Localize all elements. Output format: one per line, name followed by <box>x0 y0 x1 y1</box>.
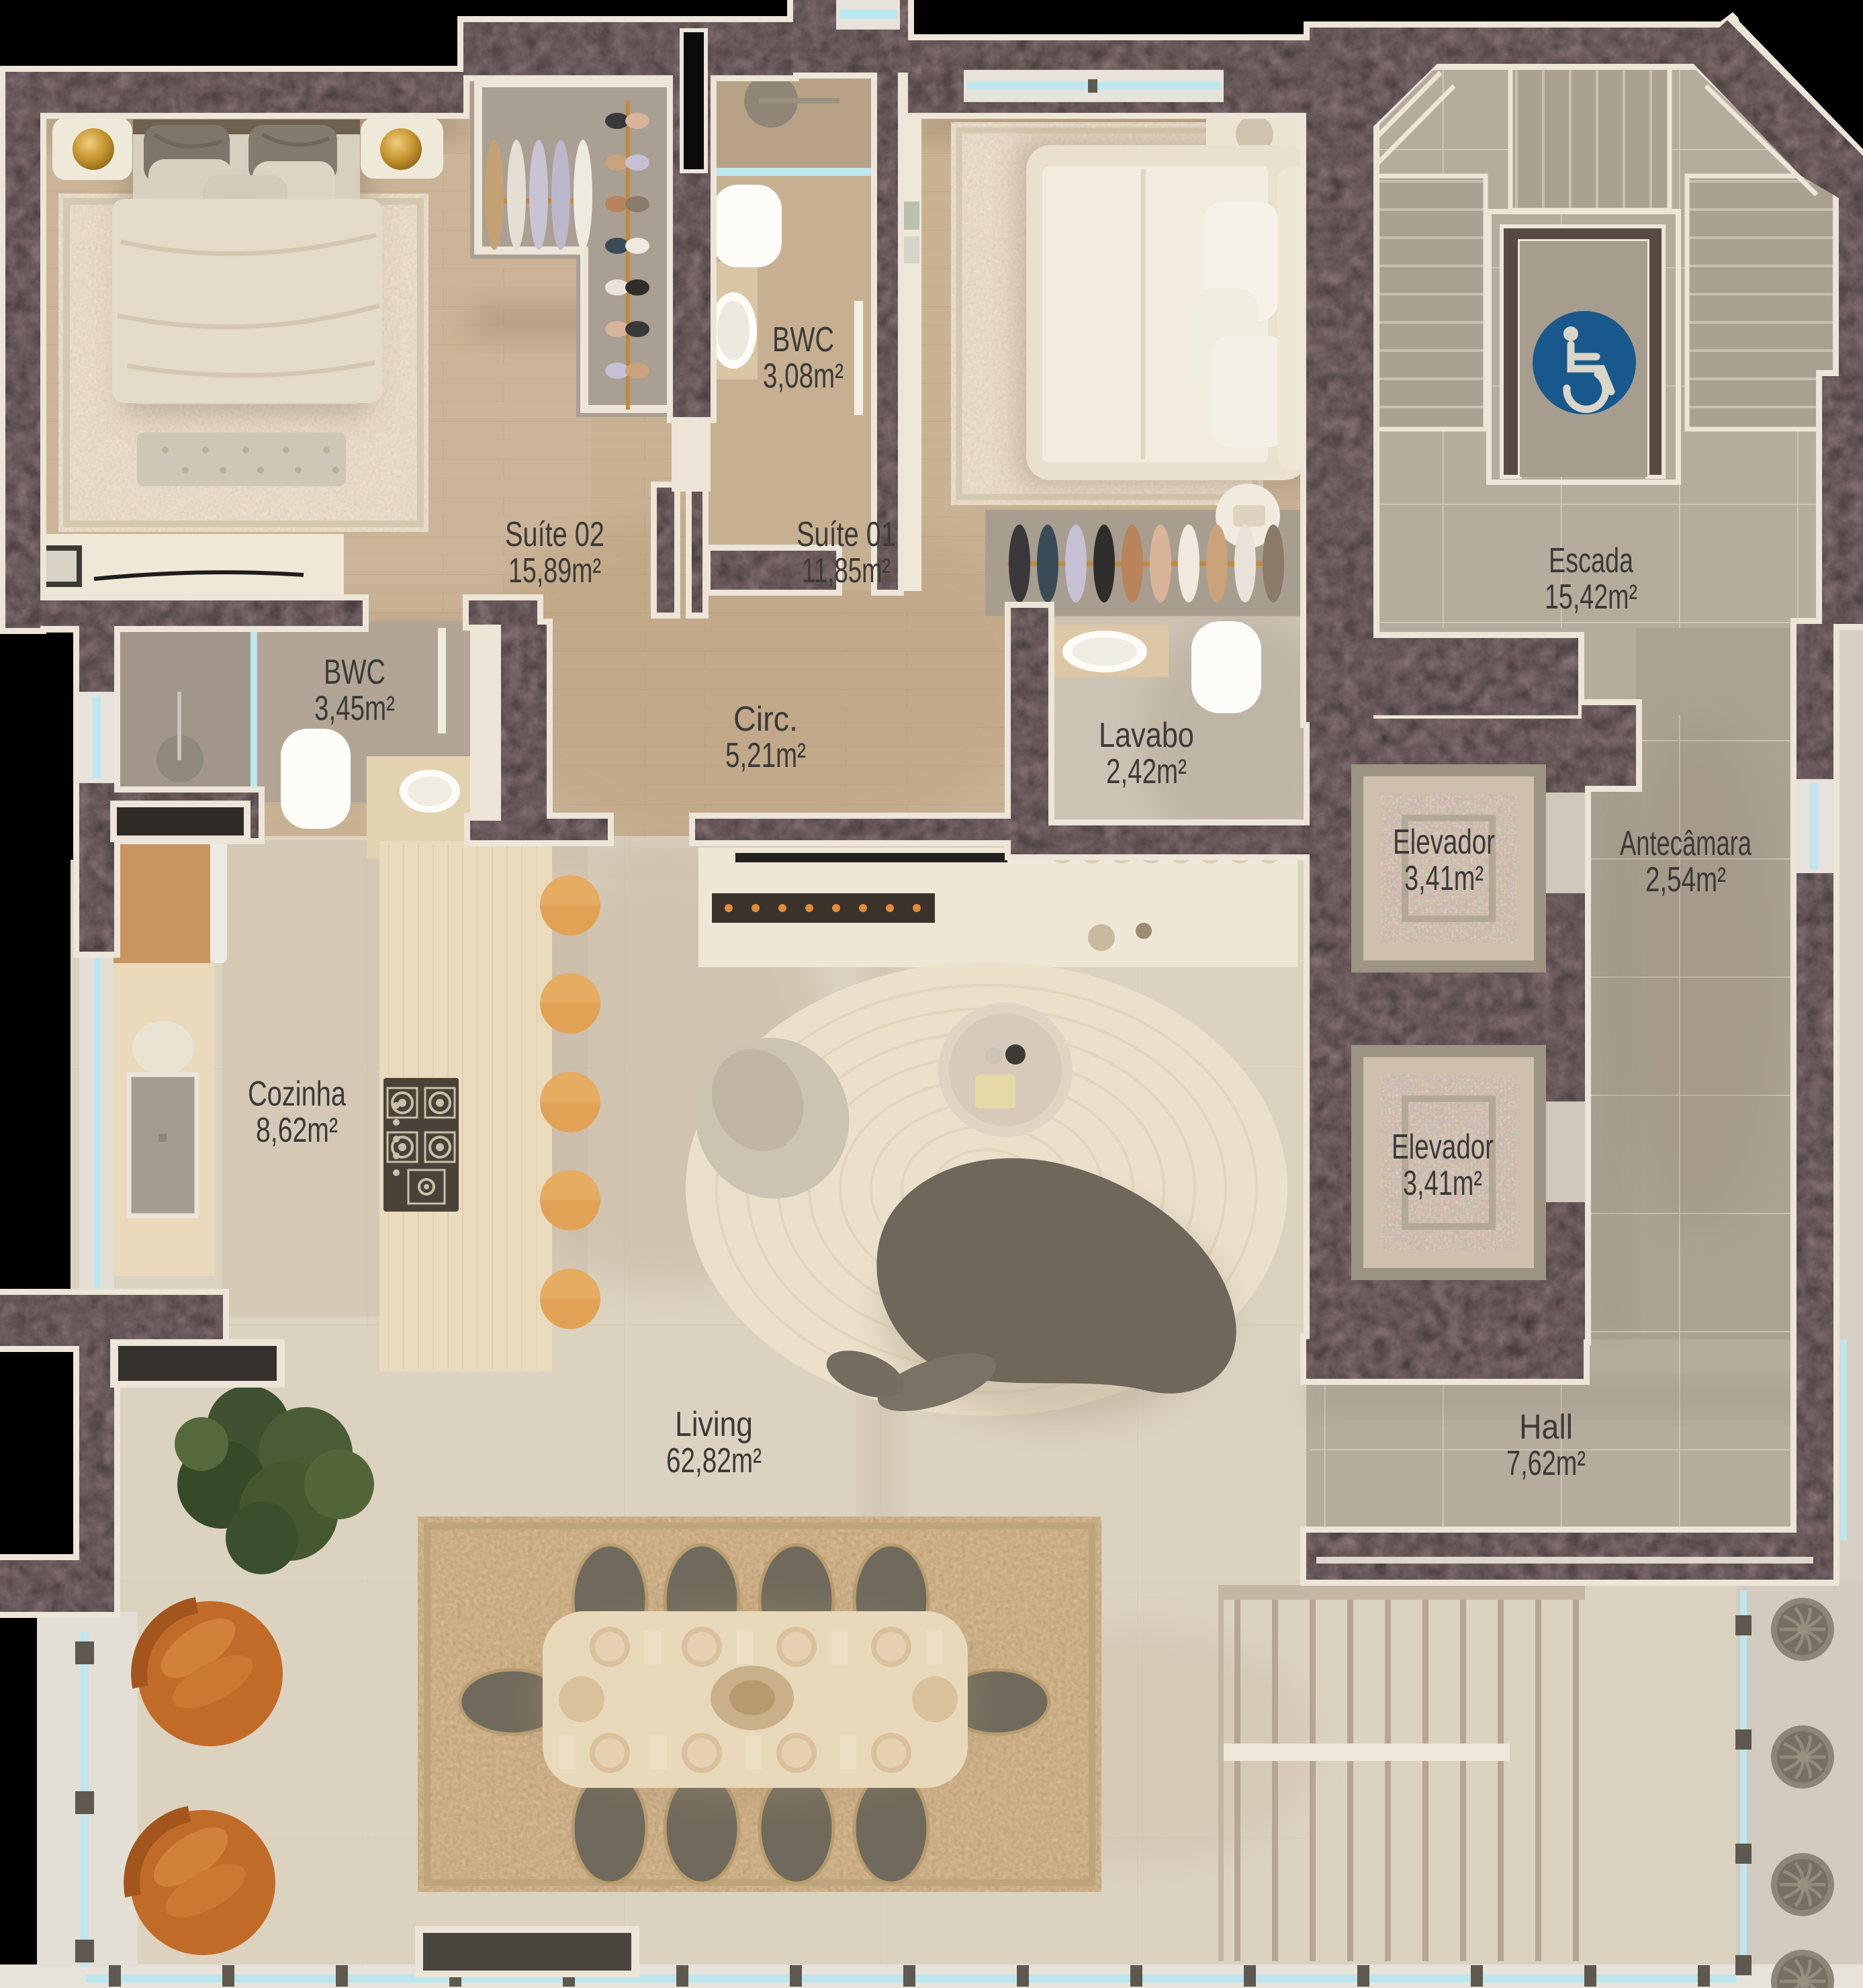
svg-text:3,45m²: 3,45m² <box>314 689 395 728</box>
svg-text:BWC: BWC <box>772 320 834 359</box>
svg-text:Circ.: Circ. <box>733 700 798 739</box>
svg-text:62,82m²: 62,82m² <box>666 1441 762 1480</box>
svg-text:Hall: Hall <box>1519 1408 1573 1447</box>
svg-text:Lavabo: Lavabo <box>1099 716 1194 755</box>
svg-text:5,21m²: 5,21m² <box>725 736 806 775</box>
svg-text:2,42m²: 2,42m² <box>1106 752 1187 791</box>
svg-text:Elevador: Elevador <box>1392 1128 1494 1167</box>
svg-text:3,41m²: 3,41m² <box>1404 859 1484 898</box>
svg-text:BWC: BWC <box>324 653 385 692</box>
svg-text:2,54m²: 2,54m² <box>1645 860 1726 899</box>
svg-text:3,41m²: 3,41m² <box>1403 1164 1482 1203</box>
svg-text:11,85m²: 11,85m² <box>802 551 891 590</box>
svg-text:8,62m²: 8,62m² <box>256 1111 338 1150</box>
svg-text:15,89m²: 15,89m² <box>508 551 601 590</box>
svg-text:Suíte 01: Suíte 01 <box>797 515 896 554</box>
svg-text:Antecâmara: Antecâmara <box>1620 824 1752 863</box>
svg-text:Living: Living <box>675 1405 753 1444</box>
svg-text:7,62m²: 7,62m² <box>1506 1444 1586 1483</box>
svg-text:Cozinha: Cozinha <box>248 1075 346 1114</box>
svg-text:3,08m²: 3,08m² <box>763 357 844 396</box>
svg-text:Suíte 02: Suíte 02 <box>505 515 604 554</box>
svg-text:Elevador: Elevador <box>1393 823 1495 862</box>
svg-text:15,42m²: 15,42m² <box>1545 578 1637 617</box>
svg-text:Escada: Escada <box>1549 541 1633 580</box>
